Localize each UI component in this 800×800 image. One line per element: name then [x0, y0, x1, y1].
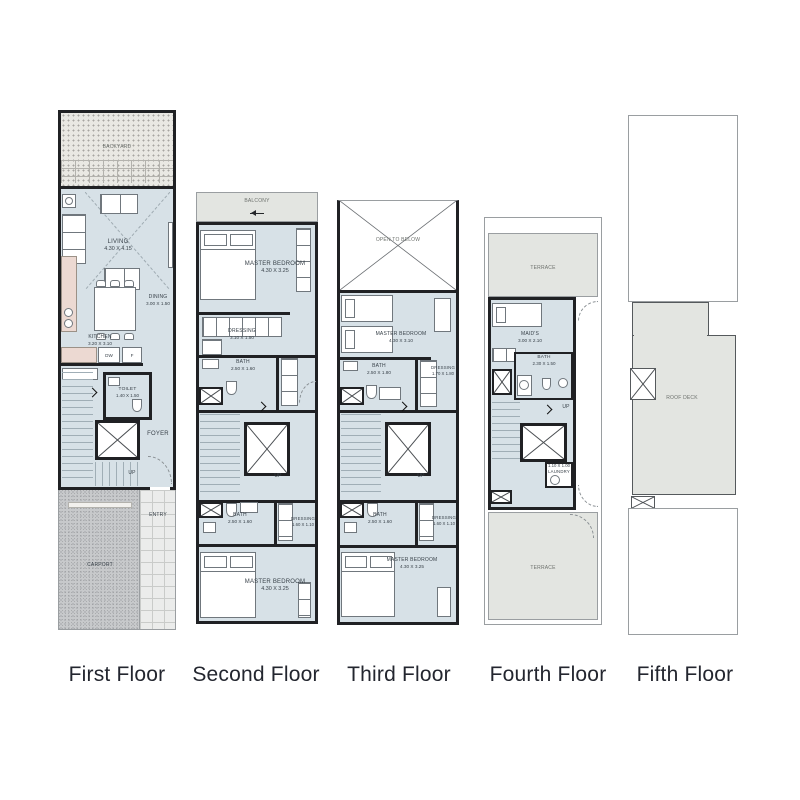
up-text: UP — [556, 404, 576, 411]
shower — [492, 369, 512, 395]
kitchen-counter — [61, 347, 97, 363]
bath-wc — [366, 385, 377, 399]
dishwasher-label: DW — [99, 348, 119, 362]
blanket-line — [201, 571, 255, 572]
dressing-bottom-dims: 1.60 X 1.10 — [430, 521, 458, 527]
entry-label: ENTRY — [140, 512, 176, 519]
bath-wc — [226, 381, 237, 395]
master-bottom-label: MASTER BEDROOM 4.30 X 3.25 — [373, 557, 451, 570]
dining-name: DINING — [142, 294, 174, 301]
shower-x-icon — [494, 371, 510, 393]
first-floor-label: First Floor — [69, 663, 166, 687]
shaft-x-icon — [492, 492, 510, 502]
bath-label: BATH 2.30 X 1.50 — [518, 355, 570, 368]
first-floor-plan: BACKYARD LIVING 4.30 X 4.15 DINING 3.00 … — [58, 110, 176, 630]
toilet-wc — [132, 399, 142, 412]
master-bottom-label: MASTER BEDROOM 4.30 X 3.25 — [236, 578, 314, 593]
stove-burner-icon — [64, 319, 73, 328]
laundry-dims: 1.10 X 1.00 — [545, 463, 573, 469]
open-to-below-text: OPEN TO BELOW — [348, 237, 448, 244]
dressing-top-name: DRESSING — [212, 328, 272, 335]
laundry-label: 1.10 X 1.00 LAUNDRY — [545, 463, 573, 475]
blanket-line — [342, 571, 394, 572]
pillow — [230, 556, 253, 568]
bath-top-label: BATH 2.50 X 1.60 — [218, 359, 268, 372]
bath-bottom-dims: 2.50 X 1.60 — [214, 519, 266, 525]
carport — [58, 490, 140, 630]
dressing-top-label: DRESSING 1.70 X 1.80 — [429, 365, 457, 377]
partition-wall — [415, 500, 418, 545]
toilet-label: TOILET 1.40 X 1.50 — [105, 387, 150, 400]
armchairs — [100, 194, 138, 214]
partition-wall — [415, 357, 418, 410]
bath-basin — [202, 359, 219, 369]
master-bottom-name: MASTER BEDROOM — [373, 557, 451, 564]
partition-wall — [274, 500, 277, 544]
master-top-dims: 4.30 X 3.10 — [365, 338, 437, 344]
up-label: UP — [411, 473, 431, 480]
up-label: UP — [268, 473, 288, 480]
second-floor-label: Second Floor — [192, 663, 319, 687]
master-top-dims: 4.30 X 3.25 — [236, 268, 314, 275]
roof-deck-label: ROOF DECK — [652, 395, 712, 402]
master-top-name: MASTER BEDROOM — [365, 331, 437, 338]
pillow — [345, 299, 355, 318]
roof-deck-notch — [632, 302, 709, 336]
dressing-bottom-dims: 1.60 X 1.10 — [289, 522, 317, 528]
shower-x-icon — [342, 389, 362, 403]
living-dims: 4.30 X 4.15 — [86, 246, 150, 253]
maids-label: MAID'S 3.00 X 2.10 — [500, 331, 560, 344]
upper-void-outline — [628, 115, 738, 302]
living-label: LIVING 4.30 X 4.15 — [86, 238, 150, 253]
lower-void-outline — [628, 508, 738, 635]
bath-bottom-dims: 2.50 X 1.60 — [355, 519, 405, 525]
dining-chair — [96, 280, 106, 287]
stove-burner-icon — [64, 308, 73, 317]
pillow — [496, 307, 506, 323]
open-to-below — [337, 200, 459, 290]
partition-wall — [196, 410, 318, 413]
up-label: UP — [122, 470, 142, 477]
roof-deck-text: ROOF DECK — [652, 395, 712, 402]
backyard-label: BACKYARD — [58, 144, 176, 151]
elevator-overrun — [630, 368, 656, 400]
master-top-label: MASTER BEDROOM 4.30 X 3.10 — [365, 331, 437, 344]
partition-wall — [276, 355, 279, 410]
balcony-arrow-icon — [250, 213, 264, 214]
shower — [340, 387, 364, 405]
dressing-bottom-name: DRESSING — [289, 516, 317, 522]
desk — [434, 298, 451, 332]
bath-top-label: BATH 2.50 X 1.80 — [355, 363, 403, 376]
elevator-shaft — [520, 423, 567, 462]
up-label: UP — [556, 404, 576, 411]
master-bottom-dims: 4.30 X 3.25 — [373, 564, 451, 570]
balcony-label: BALCONY — [196, 198, 318, 205]
bath-bottom-label: BATH 2.50 X 1.60 — [214, 512, 266, 525]
foyer-text: FOYER — [140, 430, 176, 438]
shower — [199, 387, 223, 405]
pillow — [345, 330, 355, 349]
master-top-label: MASTER BEDROOM 4.30 X 3.25 — [236, 260, 314, 275]
open-to-below-label: OPEN TO BELOW — [348, 237, 448, 244]
partition-wall — [337, 545, 459, 548]
elevator-shaft — [244, 422, 290, 476]
partition-wall — [196, 355, 318, 358]
elevator-x-icon — [388, 425, 428, 473]
elevator-x-icon — [247, 425, 287, 473]
foyer-label: FOYER — [140, 430, 176, 438]
bath-bottom-label: BATH 2.50 X 1.60 — [355, 512, 405, 525]
carport-text: CARPORT — [70, 562, 130, 569]
living-name: LIVING — [86, 238, 150, 246]
terrace-bottom-label: TERRACE — [494, 565, 592, 572]
master-bottom-dims: 4.30 X 3.25 — [236, 586, 314, 593]
maids-name: MAID'S — [500, 331, 560, 338]
dressing-bottom-label: DRESSING 1.60 X 1.10 — [430, 515, 458, 527]
toilet-basin — [108, 377, 120, 386]
staircase — [200, 414, 240, 498]
dressing-closet-left — [202, 339, 222, 355]
desk — [437, 587, 451, 617]
staircase — [341, 414, 381, 498]
partition-wall — [196, 544, 318, 547]
maids-dims: 3.00 X 2.10 — [500, 338, 560, 344]
single-bed — [492, 303, 542, 327]
fifth-floor-plan: ROOF DECK — [625, 115, 741, 635]
shower-x-icon — [201, 389, 221, 403]
up-text: UP — [268, 473, 288, 480]
washer-drum-icon — [519, 380, 529, 390]
master-top-name: MASTER BEDROOM — [236, 260, 314, 268]
side-table — [62, 194, 76, 208]
dining-label: DINING 3.00 X 1.50 — [142, 294, 174, 307]
bath-top-dims: 2.50 X 1.80 — [355, 370, 403, 376]
kitchen-name: KITCHEN — [70, 334, 130, 341]
dining-chair — [124, 280, 134, 287]
fourth-floor-plan: TERRACE MAID'S 3.00 X 2.10 BATH 2.30 X 1… — [484, 217, 602, 625]
dining-chair — [110, 280, 120, 287]
bath-top-name: BATH — [355, 363, 403, 370]
elevator-shaft — [95, 420, 140, 460]
bath-tub — [379, 387, 401, 400]
master-bottom-name: MASTER BEDROOM — [236, 578, 314, 586]
fridge-label: F — [123, 348, 141, 362]
toilet-dims: 1.40 X 1.50 — [105, 393, 150, 399]
staircase — [62, 372, 93, 484]
staircase — [492, 402, 520, 462]
terrace-bottom-text: TERRACE — [494, 565, 592, 572]
void-x-icon — [340, 201, 456, 290]
terrace-top-label: TERRACE — [494, 265, 592, 272]
elevator-x-icon — [98, 423, 137, 457]
balcony-text: BALCONY — [196, 198, 318, 205]
fourth-floor-label: Fourth Floor — [490, 663, 607, 687]
skylight-x-icon — [632, 497, 654, 508]
fifth-floor-label: Fifth Floor — [637, 663, 734, 687]
bath-top-name: BATH — [218, 359, 268, 366]
elevator-shaft — [385, 422, 431, 476]
dressing-bottom-label: DRESSING 1.60 X 1.10 — [289, 516, 317, 528]
partition-wall — [196, 312, 290, 315]
entry-court — [140, 490, 176, 630]
bath-bottom-name: BATH — [214, 512, 266, 519]
dining-table — [94, 287, 136, 331]
dressing-top-label: DRESSING 3.10 X 1.50 — [212, 328, 272, 341]
backyard-paving — [61, 160, 173, 183]
pillow — [204, 556, 227, 568]
kitchen-wall — [61, 363, 143, 366]
washer-drum-icon — [550, 475, 560, 485]
elevator-x-icon — [523, 426, 564, 459]
dining-dims: 3.00 X 1.50 — [142, 301, 174, 307]
pillow — [230, 234, 253, 246]
up-text: UP — [411, 473, 431, 480]
laundry-name: LAUNDRY — [545, 469, 573, 475]
closet-row — [492, 348, 516, 362]
tv-unit — [168, 222, 173, 268]
blanket-line — [201, 249, 255, 250]
dressing-bottom-name: DRESSING — [430, 515, 458, 521]
fridge: F — [122, 347, 142, 363]
third-floor-plan: OPEN TO BELOW MASTER BEDROOM 4.30 X 3.10… — [337, 195, 459, 625]
carport-label: CARPORT — [70, 562, 130, 569]
carport-gate — [68, 502, 132, 508]
roof-deck — [632, 335, 736, 495]
up-text: UP — [122, 470, 142, 477]
deck-seam-cover — [634, 333, 707, 337]
bath-top-dims: 2.50 X 1.60 — [218, 366, 268, 372]
elevator-x-icon — [631, 369, 655, 399]
dressing-top-name: DRESSING — [429, 365, 457, 371]
balcony — [196, 192, 318, 222]
second-floor-plan: BALCONY MASTER BEDROOM 4.30 X 3.25 DRESS… — [196, 192, 318, 624]
third-floor-label: Third Floor — [347, 663, 451, 687]
dressing-top-dims: 3.10 X 1.50 — [212, 335, 272, 341]
backyard-text: BACKYARD — [58, 144, 176, 151]
terrace-top-text: TERRACE — [494, 265, 592, 272]
pillow — [204, 234, 227, 246]
bath-wc — [542, 378, 551, 390]
linen-closet — [281, 358, 298, 406]
lamp-icon — [65, 197, 73, 205]
dressing-top-dims: 1.70 X 1.80 — [429, 371, 457, 377]
entry-text: ENTRY — [140, 512, 176, 519]
bath-basin — [558, 378, 568, 388]
bath-dims: 2.30 X 1.50 — [518, 361, 570, 367]
single-bed — [341, 295, 393, 322]
bath-bottom-name: BATH — [355, 512, 405, 519]
partition-wall — [337, 410, 459, 413]
skylight-shaft — [490, 490, 512, 504]
pillow — [345, 556, 367, 568]
dishwasher: DW — [98, 347, 120, 363]
kitchen-label: KITCHEN 3.20 X 3.10 — [70, 334, 130, 347]
